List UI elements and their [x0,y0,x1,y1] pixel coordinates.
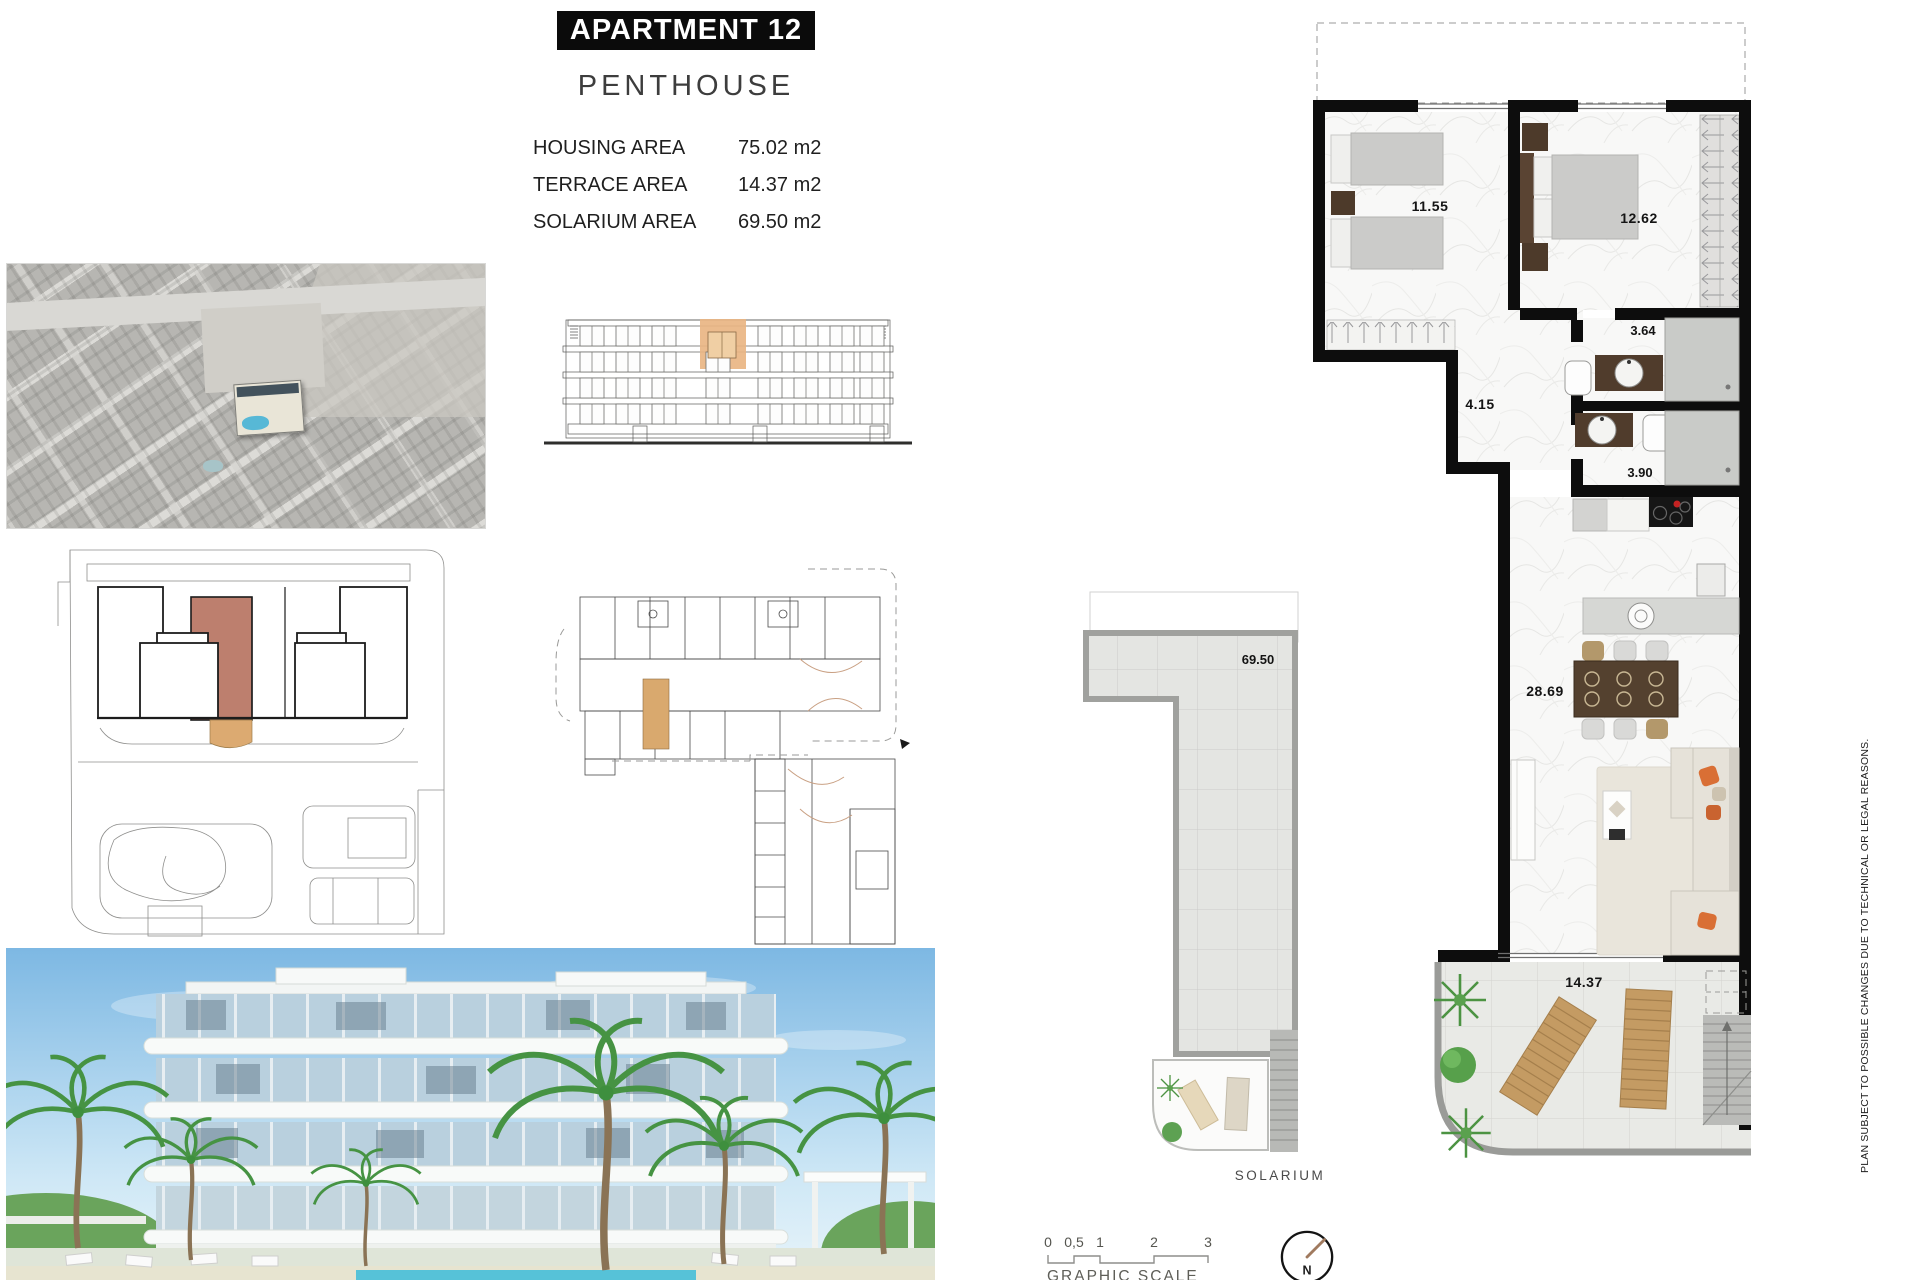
graphic-scale: 0 0,5 1 2 3 GRAPHIC SCALE [1047,1234,1247,1280]
highlighted-unit [643,679,669,749]
floor-band [144,994,788,1054]
area-value: 69.50 m2 [738,211,848,234]
elevation-drawing [538,306,918,454]
window-rows [580,326,884,424]
north-compass: N [1279,1229,1337,1280]
stairs [1270,1030,1298,1152]
title-banner: APARTMENT 12 [557,11,815,50]
pool-area [100,824,272,936]
scale-caption: GRAPHIC SCALE [1047,1268,1199,1280]
building-photo [6,948,935,1280]
dining-set [1574,641,1678,739]
roof-dashed-outline [1317,23,1745,103]
pool-edge [356,1270,696,1280]
plan-sheet: APARTMENT 12 PENTHOUSE HOUSING AREA 75.0… [0,0,1920,1280]
kitchen-island [1583,598,1739,634]
bedroom1-area-label: 11.55 [1412,198,1449,214]
disclaimer-vertical: PLAN SUBJECT TO POSSIBLE CHANGES DUE TO … [1859,795,1871,1173]
building-pool [242,415,270,431]
site-plan [48,538,458,946]
garden-blocks [303,806,415,924]
area-value: 14.37 m2 [738,174,848,197]
wood-lounger [1620,989,1672,1109]
scale-ticks: 0 0,5 1 2 3 [1047,1234,1217,1250]
empty-lot [201,303,325,394]
area-label: TERRACE AREA [533,174,738,197]
building-footprint [97,587,407,718]
area-row: TERRACE AREA 14.37 m2 [533,167,853,204]
north-label: N [1303,1263,1312,1277]
floor-outline [580,597,895,944]
coffee-table [1603,791,1631,840]
subtitle: PENTHOUSE [557,70,815,103]
bathroom1-area-label: 3.64 [1630,323,1656,338]
area-table: HOUSING AREA 75.02 m2 TERRACE AREA 14.37… [533,130,853,241]
building-roof [236,383,299,397]
solarium-caption: SOLARIUM [1210,1168,1350,1183]
living-area-label: 28.69 [1526,683,1564,699]
bush-plant [1162,1122,1182,1142]
solarium-tiled-area [1086,633,1295,1054]
floor-band [144,1058,788,1118]
unit-dashed-boundary [556,569,896,761]
scale-tick: 0 [1044,1234,1052,1250]
area-label: HOUSING AREA [533,137,738,160]
tv-sideboard [1511,760,1535,860]
area-row: HOUSING AREA 75.02 m2 [533,130,853,167]
highlighted-building [233,380,304,437]
roof-overhang-line [87,564,410,581]
hallway-area-label: 4.15 [1465,396,1494,412]
scale-tick: 2 [1150,1234,1158,1250]
stairs [1703,1015,1751,1125]
entry-arrow-icon [900,739,910,749]
scale-tick: 1 [1096,1234,1104,1250]
terrace-area-label: 14.37 [1565,974,1603,990]
highlighted-unit-terrace [210,720,252,748]
solarium-plan: 69.50 [1078,590,1303,1190]
solarium-area-label: 69.50 [1242,652,1275,667]
bathroom2-area-label: 3.90 [1627,465,1652,480]
satellite-image [6,263,486,529]
area-label: SOLARIUM AREA [533,211,738,234]
main-floor-plan: 11.55 12.62 3.64 4.15 [1308,15,1758,1165]
scale-tick: 3 [1204,1234,1212,1250]
scale-tick: 0,5 [1064,1234,1083,1250]
bedroom2-area-label: 12.62 [1620,210,1658,226]
kitchen [1573,497,1693,531]
area-row: SOLARIUM AREA 69.50 m2 [533,204,853,241]
area-value: 75.02 m2 [738,137,848,160]
scale-bar-icon [1047,1251,1217,1265]
pool-dot [203,460,223,472]
key-plan [550,558,945,950]
floor-band [144,1122,788,1182]
